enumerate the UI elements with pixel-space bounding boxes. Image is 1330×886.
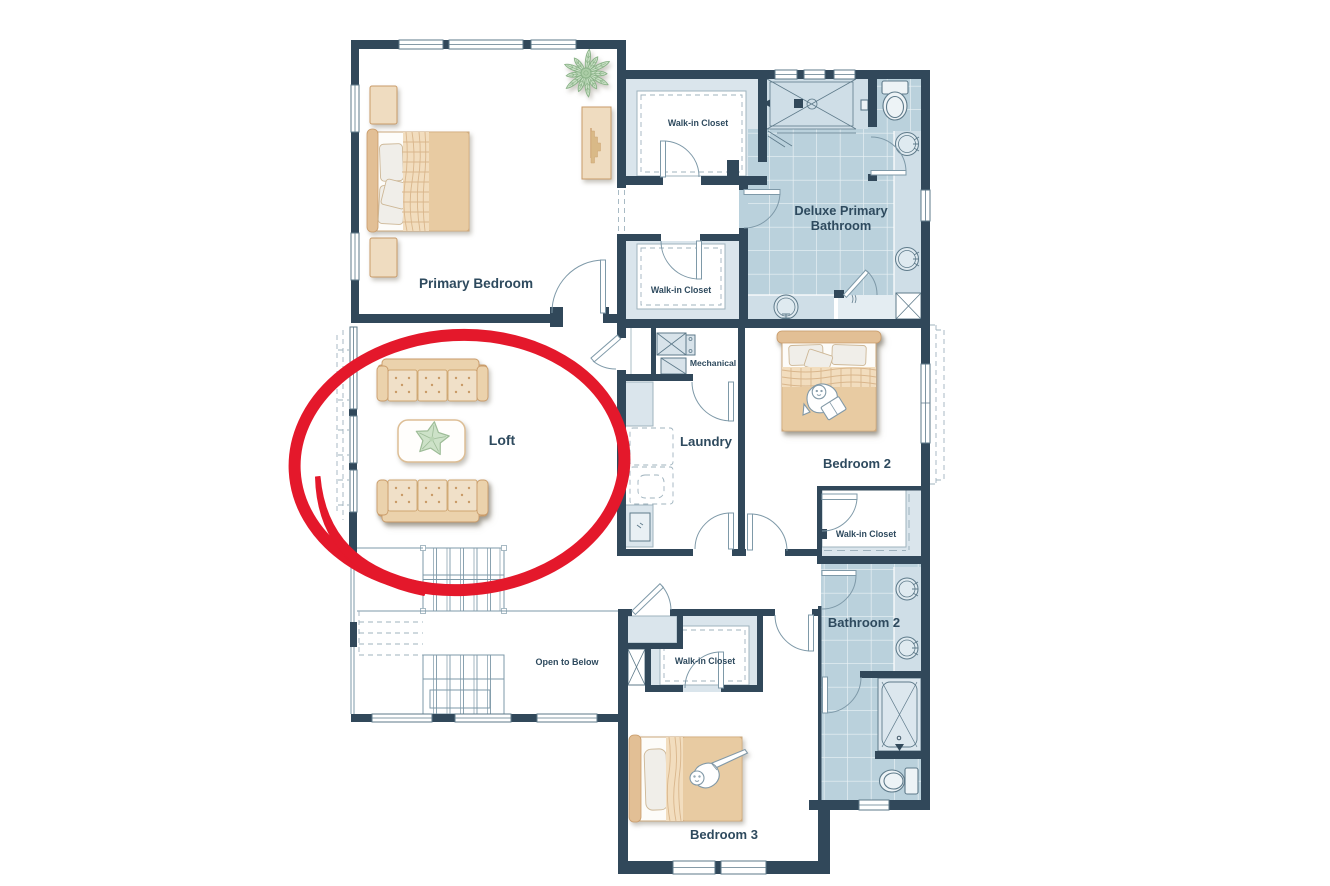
svg-text:Walk-in Closet: Walk-in Closet [651, 285, 711, 295]
svg-text:Bathroom 2: Bathroom 2 [828, 615, 900, 630]
svg-text:Walk-in Closet: Walk-in Closet [668, 118, 728, 128]
svg-text:Primary Bedroom: Primary Bedroom [419, 276, 533, 291]
svg-text:Walk-in Closet: Walk-in Closet [836, 529, 896, 539]
svg-text:Laundry: Laundry [680, 434, 733, 449]
svg-text:Bedroom 3: Bedroom 3 [690, 827, 758, 842]
svg-text:Deluxe Primary: Deluxe Primary [794, 203, 888, 218]
svg-text:Walk-in Closet: Walk-in Closet [675, 656, 735, 666]
svg-text:Mechanical: Mechanical [690, 358, 736, 368]
svg-text:Open to Below: Open to Below [536, 657, 600, 667]
svg-text:Bathroom: Bathroom [811, 218, 871, 233]
svg-text:Loft: Loft [489, 432, 516, 448]
svg-text:Bedroom 2: Bedroom 2 [823, 456, 891, 471]
